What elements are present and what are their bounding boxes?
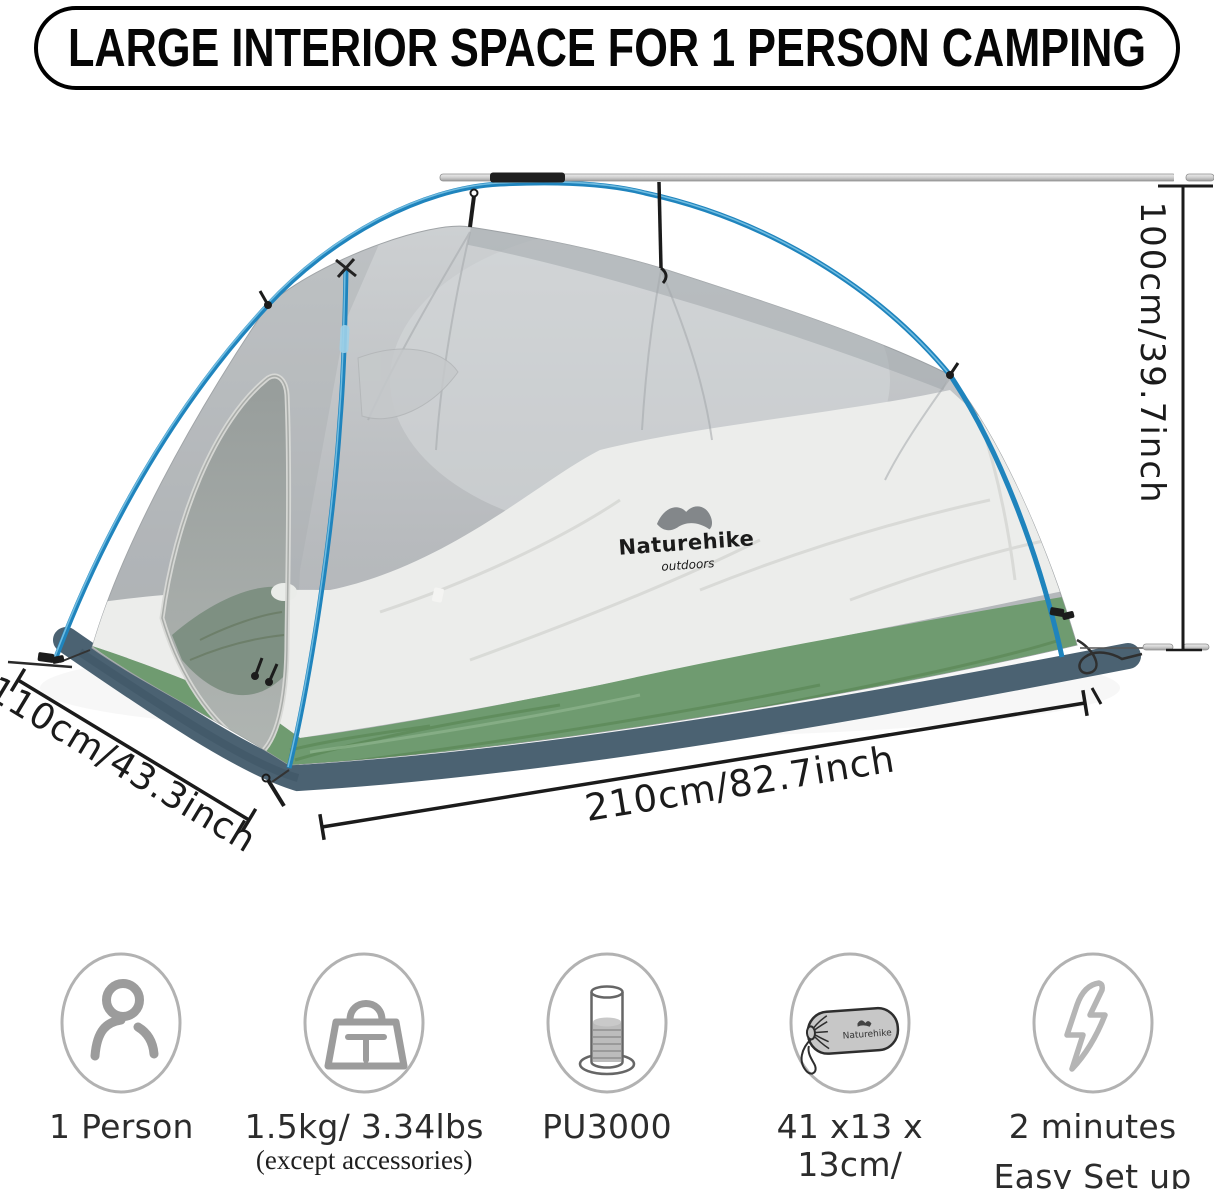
- tent-photo: Naturehike outdoors: [0, 120, 1214, 900]
- height-dimension-label: 100cm/39.7inch: [1132, 201, 1172, 504]
- water-column-icon: [527, 950, 687, 1096]
- feature-label: PU3000: [486, 1108, 729, 1146]
- pole-connector: [490, 173, 565, 183]
- feature-row: 1 Person 1.5kg/ 3.34lbs (except accessor…: [0, 950, 1214, 1189]
- length-dim-tick-1: [320, 814, 324, 840]
- pole-sleeve: [339, 325, 349, 353]
- feature-weight: 1.5kg/ 3.34lbs (except accessories): [243, 950, 486, 1189]
- feature-label: 2 minutes: [971, 1108, 1214, 1146]
- feature-label: 41 x13 x 13cm/: [728, 1108, 971, 1185]
- header-banner: LARGE INTERIOR SPACE FOR 1 PERSON CAMPIN…: [34, 6, 1180, 90]
- feature-note: (except accessories): [243, 1146, 486, 1174]
- header-title-svg: LARGE INTERIOR SPACE FOR 1 PERSON CAMPIN…: [52, 10, 1162, 86]
- weight-icon: [284, 950, 444, 1096]
- person-icon: [41, 950, 201, 1096]
- pole-gap: [1174, 170, 1184, 185]
- feature-capacity: 1 Person: [0, 950, 243, 1189]
- page-title: LARGE INTERIOR SPACE FOR 1 PERSON CAMPIN…: [68, 18, 1146, 78]
- feature-label: 1 Person: [0, 1108, 243, 1146]
- feature-waterproof: PU3000: [486, 950, 729, 1189]
- lightning-icon: [1013, 950, 1173, 1096]
- feature-label-line2: Easy Set up: [971, 1158, 1214, 1189]
- product-infographic-page: LARGE INTERIOR SPACE FOR 1 PERSON CAMPIN…: [0, 0, 1214, 1189]
- feature-label: 1.5kg/ 3.34lbs: [243, 1108, 486, 1146]
- silver-pole-tip: [1186, 174, 1214, 181]
- feature-packed-size: Naturehike 41 x13 x 13cm/ 16x 5.1 x 5.1 …: [728, 950, 971, 1189]
- interior-pillow: [271, 583, 297, 601]
- storage-bag-icon: Naturehike: [770, 950, 930, 1096]
- feature-setup: 2 minutes Easy Set up: [971, 950, 1214, 1189]
